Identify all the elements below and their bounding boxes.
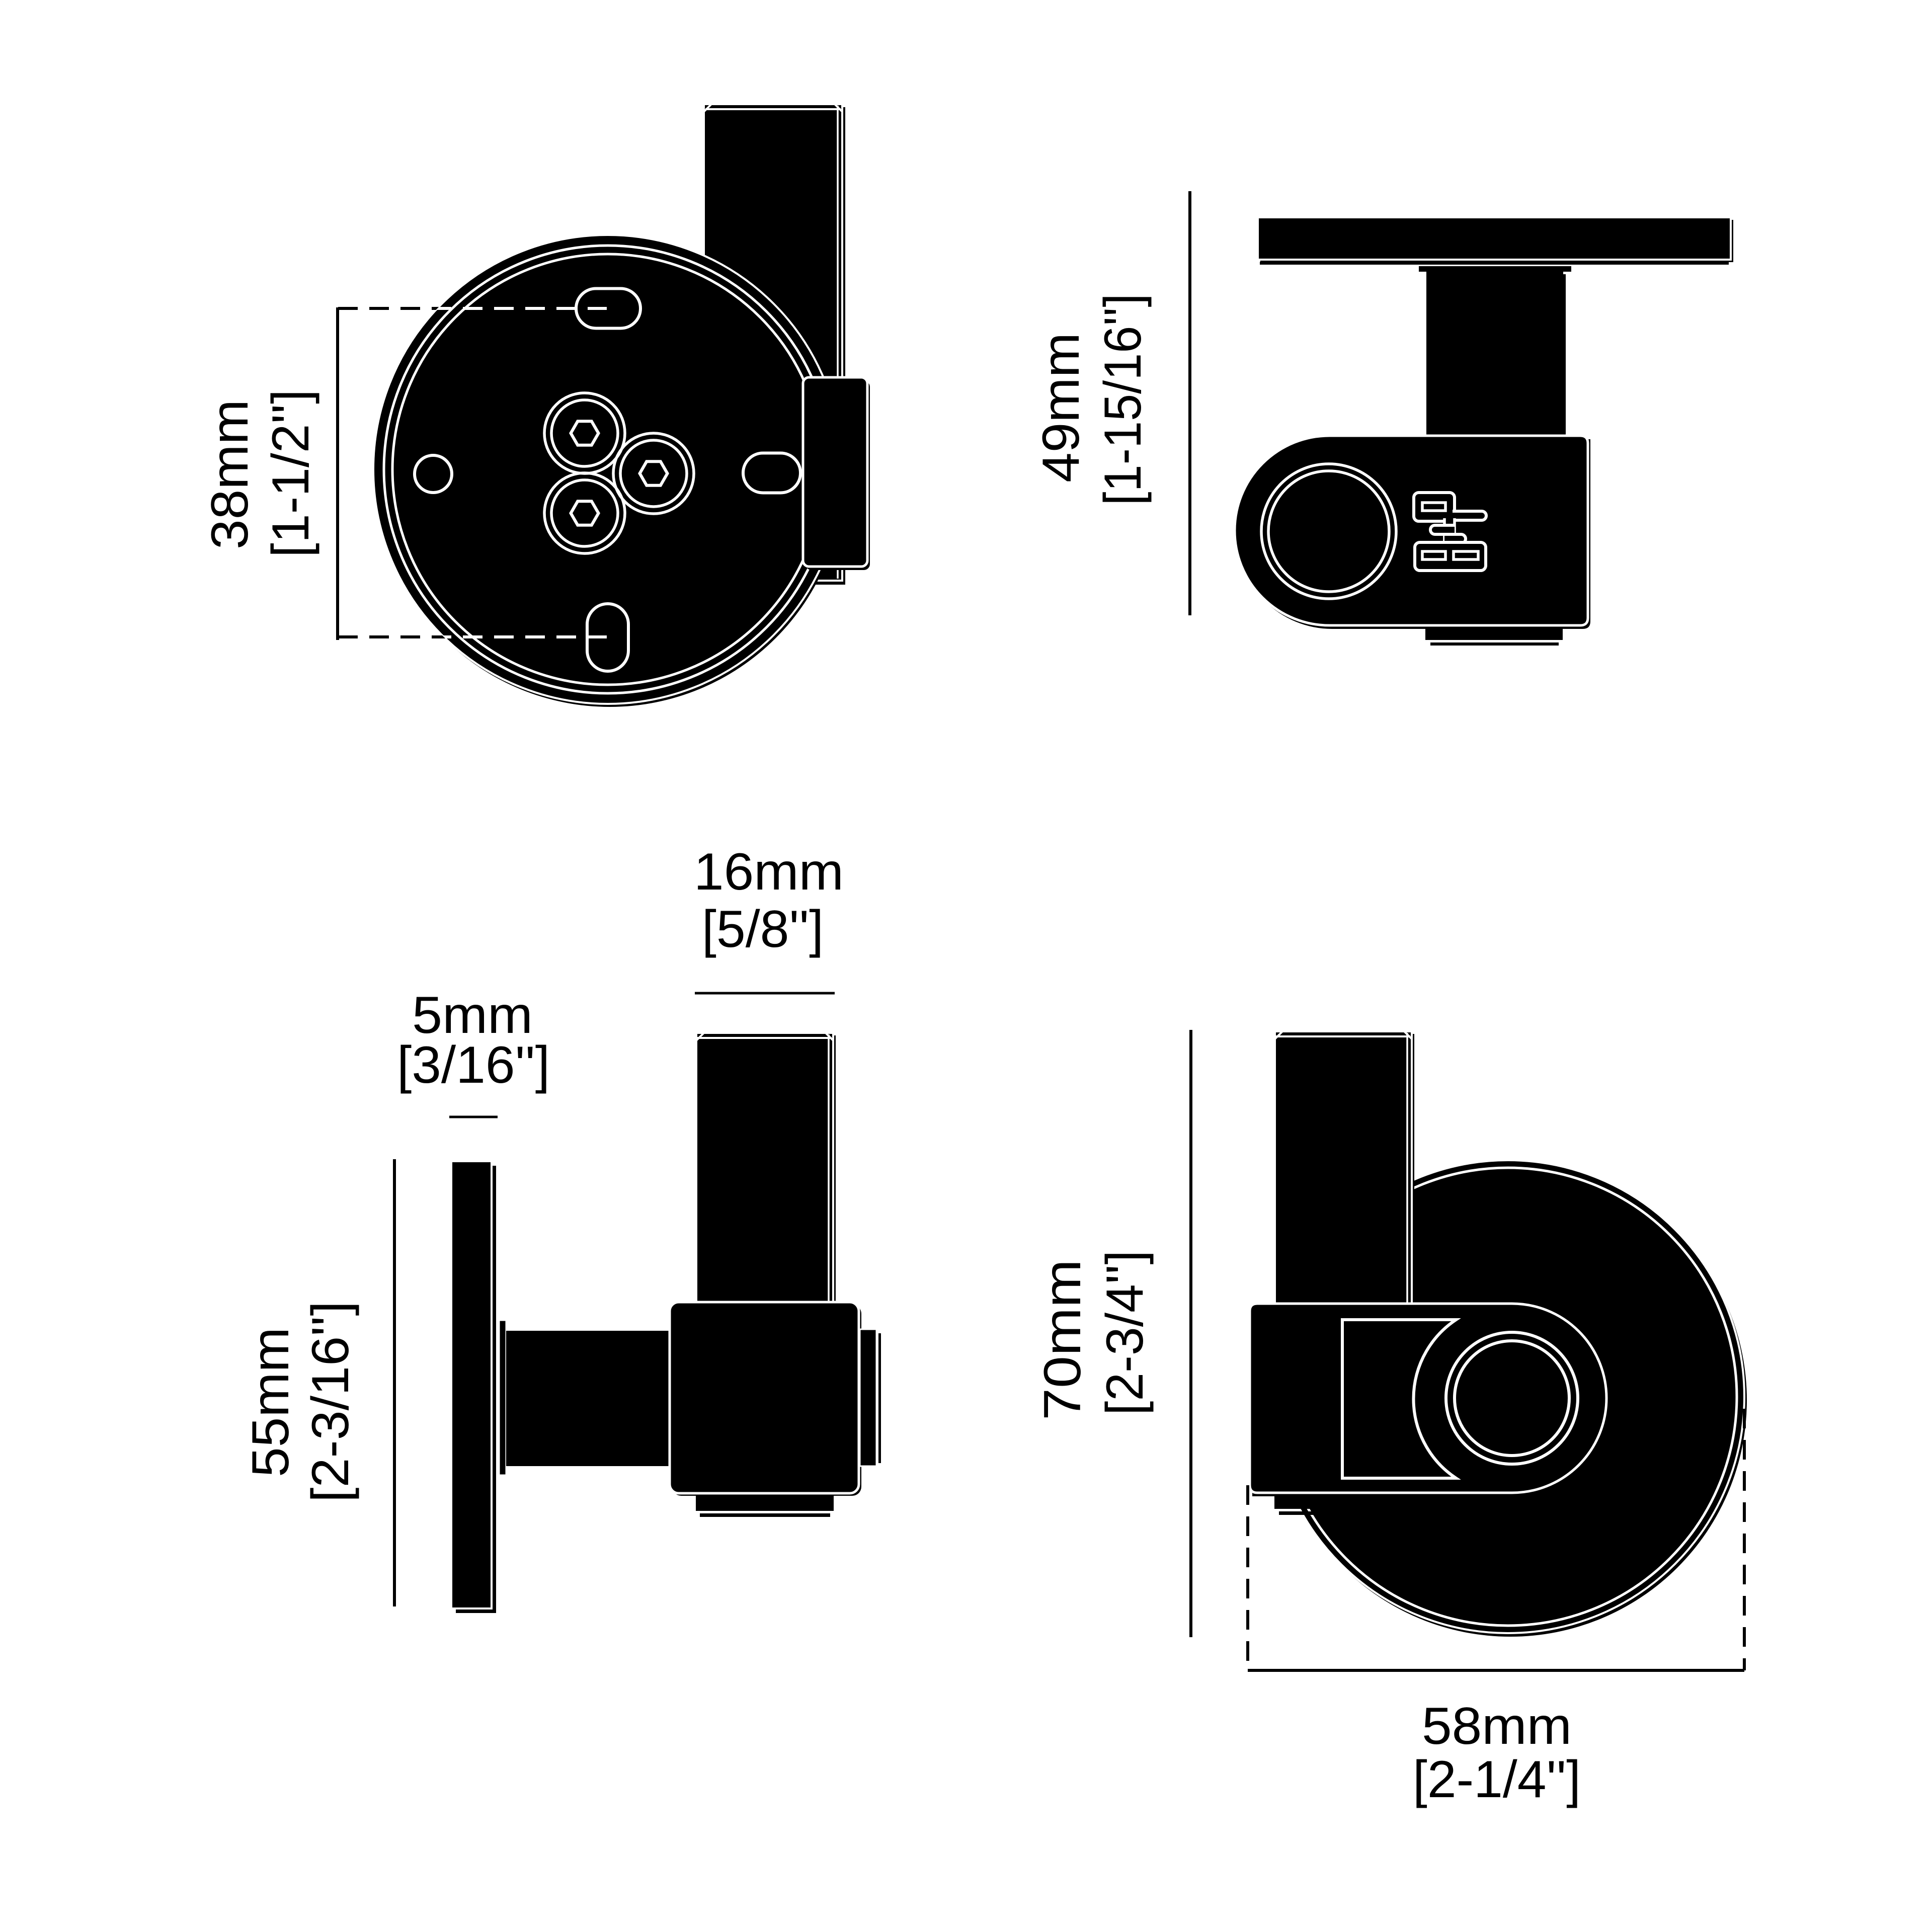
- svg-text:[1-15/16'']: [1-15/16'']: [1094, 294, 1152, 506]
- svg-text:[5/8'']: [5/8'']: [702, 900, 824, 958]
- svg-text:[2-3/16'']: [2-3/16'']: [301, 1301, 360, 1502]
- svg-text:58mm: 58mm: [1422, 1697, 1572, 1755]
- svg-text:[2-1/4'']: [2-1/4'']: [1413, 1750, 1581, 1809]
- svg-text:16mm: 16mm: [694, 843, 844, 901]
- svg-text:49mm: 49mm: [1032, 333, 1090, 482]
- svg-text:55mm: 55mm: [242, 1327, 300, 1477]
- svg-text:[3/16'']: [3/16'']: [397, 1036, 550, 1094]
- svg-text:[2-3/4'']: [2-3/4'']: [1096, 1250, 1154, 1415]
- svg-text:70mm: 70mm: [1033, 1259, 1092, 1420]
- svg-text:[1-1/2'']: [1-1/2'']: [262, 389, 320, 557]
- svg-text:38mm: 38mm: [201, 399, 259, 549]
